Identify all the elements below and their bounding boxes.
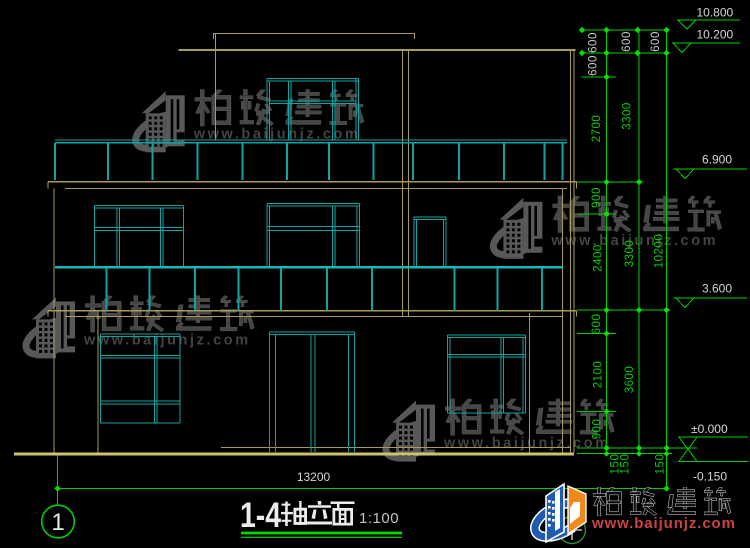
svg-text:1-4: 1-4 [240,496,281,535]
svg-text:150: 150 [655,454,667,475]
svg-text:±0.000: ±0.000 [691,422,728,436]
svg-text:10.200: 10.200 [697,28,734,42]
svg-text:1: 1 [51,509,64,536]
svg-text:3600: 3600 [624,366,636,394]
svg-text:10.800: 10.800 [697,6,734,20]
svg-text:3.600: 3.600 [702,282,732,296]
svg-text:900: 900 [592,419,604,440]
svg-text:-0.150: -0.150 [693,470,727,484]
svg-text:600: 600 [588,32,600,53]
svg-text:900: 900 [591,187,603,208]
svg-text:600: 600 [591,314,603,335]
svg-text:600: 600 [588,55,600,76]
svg-text:2400: 2400 [593,244,605,272]
svg-text:2700: 2700 [591,115,603,143]
svg-text:1:100: 1:100 [359,510,399,527]
svg-text:www.baijunjz.com: www.baijunjz.com [591,515,736,532]
svg-text:13200: 13200 [297,470,331,484]
svg-text:150: 150 [620,454,632,475]
svg-text:600: 600 [621,31,633,52]
svg-text:10200: 10200 [654,234,666,268]
svg-text:6.900: 6.900 [702,153,732,167]
svg-text:600: 600 [650,31,662,52]
svg-text:2100: 2100 [593,361,605,389]
svg-text:3300: 3300 [624,240,636,268]
svg-text:3300: 3300 [622,102,634,130]
